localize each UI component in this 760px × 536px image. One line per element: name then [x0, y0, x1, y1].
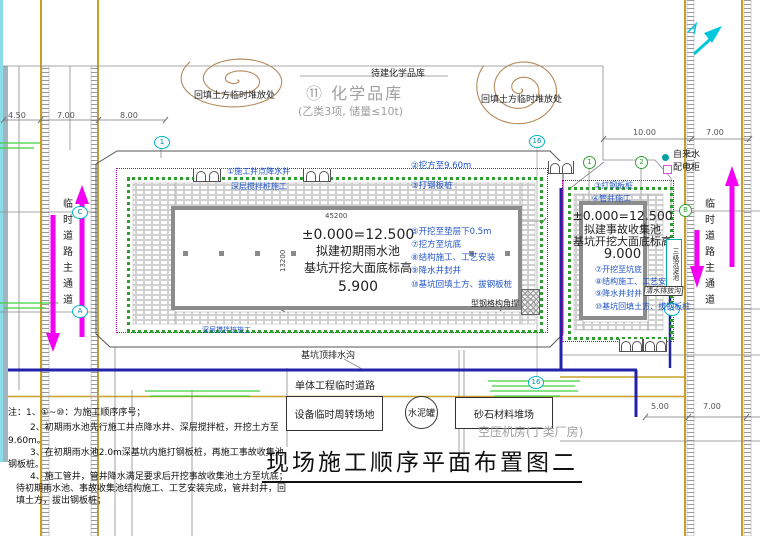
label-corner-brace: 型钢格构角撑 — [471, 299, 519, 308]
label-sheet-pile-acc: ③打钢板桩 — [594, 181, 633, 190]
acc-step-7: ⑦开挖至坑底 — [595, 265, 642, 274]
dim-500: 5.00 — [651, 402, 669, 411]
accident-pool-elevation: ±0.000=12.500 — [560, 209, 685, 223]
grid-bubble-16-top: 16 — [529, 135, 545, 148]
chemical-warehouse-subtitle: (乙类3项, 储量≤10t) — [298, 106, 403, 119]
pending-chemical-warehouse-label: 待建化学品库 — [371, 69, 425, 79]
chemical-warehouse-title: ⑪ 化学品库 — [306, 85, 403, 103]
label-tube-well: ④管井施工 — [592, 194, 631, 203]
main-step-8: ⑧结构施工、工艺安装 — [411, 254, 495, 264]
wellpoint-symbol — [303, 169, 331, 182]
unit-road-label: 单体工程临时道路 — [295, 381, 375, 393]
column-square — [219, 251, 224, 256]
dim-45200: 45200 — [325, 212, 347, 220]
equipment-turnover-area: 设备临时周转场地 — [286, 396, 383, 431]
label-wellpoint-dewatering: ①施工井点降水井 — [227, 167, 290, 176]
dim-1000: 10.00 — [633, 128, 656, 137]
column-square — [255, 251, 260, 256]
legend-tap-water: 自来水 — [673, 150, 700, 160]
drawing-title: 现场施工顺序平面布置图二 — [262, 450, 582, 483]
wellpoint-symbol — [548, 161, 574, 174]
grid-bubble-A: A — [72, 305, 88, 318]
grid-bubble-C: C — [72, 206, 88, 219]
main-step-9: ⑨降水井封井 — [411, 267, 461, 277]
main-step-5: ⑤开挖至垫层下0.5m — [411, 228, 491, 238]
label-sheet-pile-main: ③打钢板桩 — [411, 182, 453, 192]
label-deep-mixing-pile-bottom: 深层搅拌桩施工 — [202, 326, 251, 334]
note-line: 2、初期雨水池先行施工井点降水井、深层搅拌桩，开挖土方至 — [30, 420, 279, 433]
pit-top-drain-label: 基坑顶排水沟 — [301, 351, 355, 361]
dim-450: 4.50 — [8, 111, 26, 120]
main-pool-elevation: ±0.000=12.500 — [288, 227, 428, 243]
legend-power-cabinet: 配电柜 — [673, 163, 700, 173]
column-square — [183, 251, 188, 256]
note-line: 填土方，拔出钢板桩； — [16, 493, 106, 506]
label-deep-mixing-pile: 深层搅拌桩施工 — [231, 182, 287, 191]
wellpoint-symbol — [619, 339, 643, 352]
site-edge-strips — [0, 0, 8, 462]
dim-700b: 7.00 — [706, 128, 724, 137]
dim-13200: 13200 — [279, 250, 287, 272]
power-cabinet-icon — [663, 165, 672, 174]
grid-bubble-1: 1 — [154, 136, 170, 149]
main-pool-name: 拟建初期雨水池 — [288, 245, 428, 259]
site-plan-drawing: 1 16 16 C A A 1 2 B 自来水 配电柜 待建化学品库 ⑪ 化学品… — [0, 0, 760, 536]
acc-step-8: ⑧结构施工、工艺安装 — [595, 277, 674, 286]
column-square — [505, 251, 510, 256]
dim-800: 8.00 — [120, 111, 138, 120]
grid-bubble-seq1: 1 — [583, 156, 596, 169]
stockpile-label-left: 回填土方临时堆放处 — [194, 91, 275, 101]
grid-bubble-seq2: 2 — [635, 156, 648, 169]
main-step-7: ⑦挖方至坑底 — [411, 241, 461, 251]
cement-tank: 水泥罐 — [405, 396, 438, 429]
note-line: 3、在初期雨水池2.0m深基坑内施打钢板桩，再施工事故收集池 — [30, 445, 284, 458]
steel-lattice-corner-brace — [521, 289, 540, 315]
note-line: 注：1、①~⑩：为施工顺序序号； — [8, 405, 145, 418]
main-pool-sub: 基坑开挖大面底标高 — [288, 262, 428, 276]
stockpile-label-right: 回填土方临时堆放处 — [481, 95, 562, 105]
acc-step-9: ⑨降水井封井 — [595, 289, 642, 298]
sedimentation-tank: 三级沉淀池 — [666, 239, 682, 289]
wellpoint-symbol — [193, 169, 221, 182]
wellpoint-symbol — [643, 339, 667, 352]
acc-step-10: ⑩基坑回填土方、拔钢板桩 — [595, 302, 690, 311]
label-excavate-960: ②挖方至9.60m — [411, 162, 471, 172]
tap-water-icon — [662, 154, 669, 161]
main-pool-bottom-elev: 5.900 — [288, 279, 428, 295]
clean-water-drain-label: 清水排放沟 — [643, 286, 683, 296]
compressor-room-label: 空压机房(丁类厂房) — [478, 426, 583, 440]
road-label-left: 临时道路主通道 — [60, 198, 72, 310]
dim-700c: 7.00 — [703, 402, 721, 411]
grid-bubble-16-bottom: 16 — [528, 376, 544, 389]
main-step-10: ⑩基坑回填土方、拔钢板桩 — [411, 281, 512, 291]
dim-700a: 7.00 — [57, 111, 75, 120]
road-label-right: 临时道路主通道 — [702, 198, 714, 310]
